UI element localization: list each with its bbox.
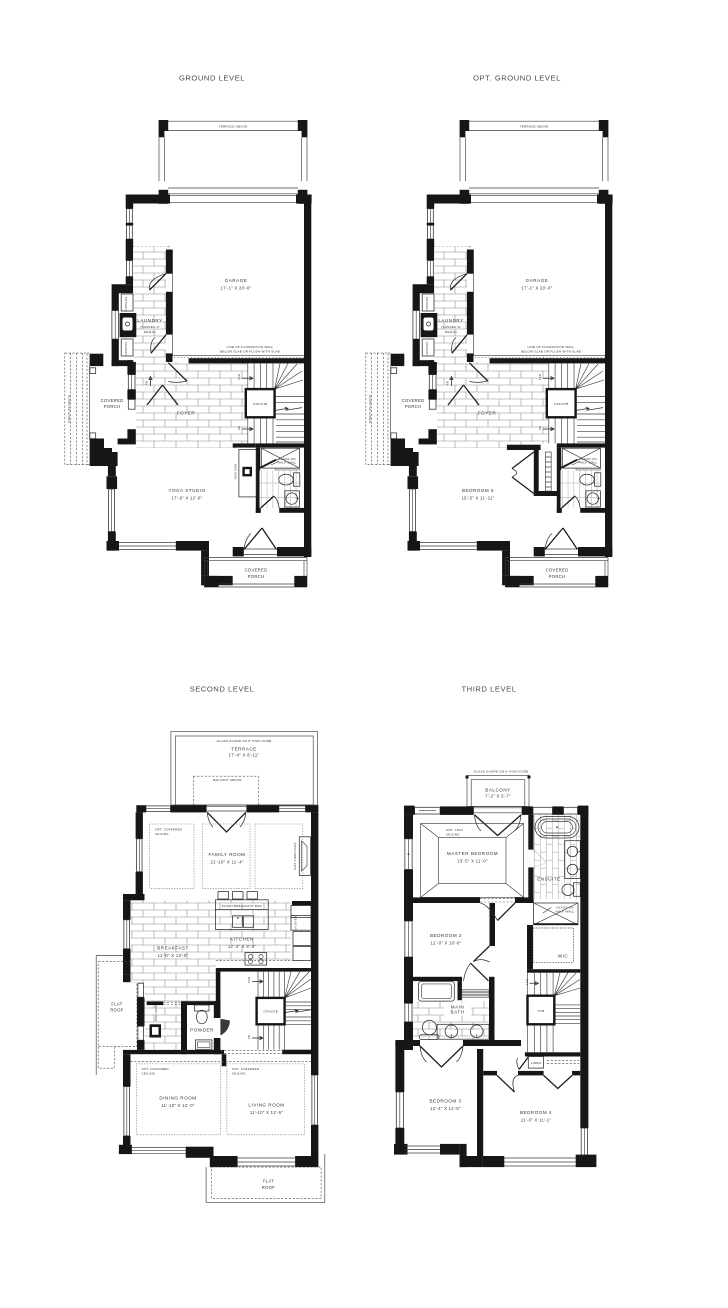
svg-text:11'-0" X 13'-0": 11'-0" X 13'-0" — [158, 953, 189, 958]
svg-text:FOYER: FOYER — [177, 411, 196, 416]
svg-text:GLASS GUARD ON 6' HIGH CURB: GLASS GUARD ON 6' HIGH CURB — [217, 739, 272, 743]
svg-text:WIC: WIC — [558, 954, 569, 959]
svg-text:BAR SINK: BAR SINK — [154, 1004, 158, 1021]
svg-text:SECOND LEVEL: SECOND LEVEL — [190, 685, 255, 694]
svg-text:FLAT: FLAT — [263, 1179, 274, 1184]
svg-text:4R: 4R — [145, 380, 149, 385]
svg-text:OPT. COFFERED: OPT. COFFERED — [232, 1067, 260, 1071]
svg-text:UPPERS: UPPERS — [124, 297, 128, 311]
svg-text:LAUNDRY: LAUNDRY — [137, 318, 162, 323]
svg-text:21'-10" X 11'-4": 21'-10" X 11'-4" — [210, 859, 243, 864]
svg-text:ROOF: ROOF — [110, 1008, 123, 1013]
svg-text:11'-10" X 13'-5": 11'-10" X 13'-5" — [250, 1110, 283, 1115]
svg-text:GAS FIREPLACE: GAS FIREPLACE — [293, 842, 297, 869]
svg-text:GLASS GUARD ON 6' HIGH CURB: GLASS GUARD ON 6' HIGH CURB — [474, 770, 529, 774]
svg-text:UPPERS: UPPERS — [124, 342, 128, 356]
svg-text:CEILING: CEILING — [232, 1071, 246, 1075]
svg-text:OTA/OTB: OTA/OTB — [263, 1010, 278, 1014]
svg-text:REQ'D): REQ'D) — [144, 330, 156, 334]
svg-text:12'-4" X 11'-5": 12'-4" X 11'-5" — [430, 1106, 461, 1111]
svg-text:16R: 16R — [237, 373, 241, 380]
svg-text:STEPS AS REQ'D: STEPS AS REQ'D — [67, 394, 71, 423]
svg-text:17'-9" X 12'-0": 17'-9" X 12'-0" — [172, 496, 203, 501]
svg-text:PORCH: PORCH — [248, 574, 265, 579]
svg-text:(SUNKEN IF: (SUNKEN IF — [140, 325, 160, 329]
svg-text:BREAKFAST: BREAKFAST — [157, 946, 189, 951]
svg-text:FLUSH BREAKFAST BAR: FLUSH BREAKFAST BAR — [222, 904, 263, 908]
svg-text:BELOW SLAB OR FLUSH WITH SLAB: BELOW SLAB OR FLUSH WITH SLAB — [220, 350, 280, 354]
svg-text:FAMILY ROOM: FAMILY ROOM — [209, 852, 246, 857]
svg-text:CSINK: CSINK — [119, 320, 123, 331]
svg-text:12'-0" X 10'-0": 12'-0" X 10'-0" — [431, 940, 462, 945]
svg-text:FLAT: FLAT — [111, 1002, 122, 1007]
svg-text:GROUND LEVEL: GROUND LEVEL — [179, 74, 245, 83]
svg-text:OPT. COFFERED: OPT. COFFERED — [155, 828, 183, 832]
svg-text:POWDER: POWDER — [190, 1028, 214, 1033]
svg-text:BALCONY ABOVE: BALCONY ABOVE — [213, 778, 242, 782]
svg-text:HALF WALL: HALF WALL — [556, 909, 575, 913]
svg-text:BEDROOM 2: BEDROOM 2 — [430, 933, 462, 938]
svg-text:BALCONY: BALCONY — [485, 788, 510, 793]
svg-text:16R: 16R — [247, 976, 251, 983]
svg-text:BEDROOM 4: BEDROOM 4 — [520, 1110, 552, 1115]
svg-text:PORCH: PORCH — [104, 404, 121, 409]
svg-text:COVERED: COVERED — [245, 568, 268, 573]
svg-text:OTA/OTB: OTA/OTB — [253, 402, 268, 406]
svg-text:OPT. COFFERED: OPT. COFFERED — [142, 1067, 170, 1071]
svg-text:MASTER BEDROOM: MASTER BEDROOM — [447, 851, 498, 856]
svg-text:OPT. TRAY: OPT. TRAY — [446, 828, 464, 832]
svg-text:CEILING: CEILING — [142, 1071, 156, 1075]
svg-text:COVERED: COVERED — [101, 398, 124, 403]
svg-text:YOGA STUDIO: YOGA STUDIO — [168, 488, 205, 493]
svg-text:11'-0" X 11'-1": 11'-0" X 11'-1" — [521, 1117, 552, 1122]
svg-text:3R: 3R — [237, 425, 241, 430]
svg-text:ENSUITE: ENSUITE — [537, 877, 560, 882]
svg-text:TERRACE: TERRACE — [231, 747, 256, 752]
svg-text:BATH: BATH — [451, 1010, 465, 1015]
svg-text:OPT. GROUND LEVEL: OPT. GROUND LEVEL — [473, 74, 561, 83]
svg-text:3R: 3R — [247, 1034, 251, 1039]
svg-text:DINING ROOM: DINING ROOM — [159, 1096, 196, 1101]
svg-text:AVCI BAR: AVCI BAR — [233, 463, 237, 479]
svg-text:HALF WALL: HALF WALL — [278, 461, 297, 465]
svg-text:THIRD LEVEL: THIRD LEVEL — [461, 685, 516, 694]
svg-text:7'-2" X 3'-7": 7'-2" X 3'-7" — [485, 794, 511, 799]
svg-text:17'-4" X 8'-11": 17'-4" X 8'-11" — [229, 753, 260, 758]
svg-text:LINEN: LINEN — [531, 1061, 541, 1065]
svg-text:13'-5" X 11'-0": 13'-5" X 11'-0" — [457, 858, 488, 863]
svg-text:TERRACE ABOVE: TERRACE ABOVE — [219, 125, 248, 129]
svg-text:OTB: OTB — [537, 1009, 544, 1013]
svg-text:KITCHEN: KITCHEN — [230, 937, 254, 942]
svg-text:CEILING: CEILING — [155, 832, 169, 836]
svg-text:B/I OVEN: B/I OVEN — [294, 915, 298, 930]
svg-text:CEILING: CEILING — [446, 833, 460, 837]
svg-text:15'-5" X 11'-11": 15'-5" X 11'-11" — [462, 496, 495, 501]
svg-text:12'-4" X 8'-9": 12'-4" X 8'-9" — [228, 944, 257, 949]
svg-text:LIVING ROOM: LIVING ROOM — [248, 1103, 284, 1108]
svg-text:17'-1" X 20'-0": 17'-1" X 20'-0" — [221, 286, 252, 291]
svg-text:ROOF: ROOF — [262, 1185, 275, 1190]
svg-text:GARAGE: GARAGE — [225, 278, 248, 283]
svg-text:11'-10" X 12'-0": 11'-10" X 12'-0" — [161, 1103, 194, 1108]
svg-text:BEDROOM 5: BEDROOM 5 — [462, 488, 494, 493]
svg-text:LINE OF FOUNDATION WALL: LINE OF FOUNDATION WALL — [227, 345, 274, 349]
svg-text:BEDROOM 3: BEDROOM 3 — [429, 1099, 461, 1104]
svg-text:16R: 16R — [525, 978, 529, 985]
